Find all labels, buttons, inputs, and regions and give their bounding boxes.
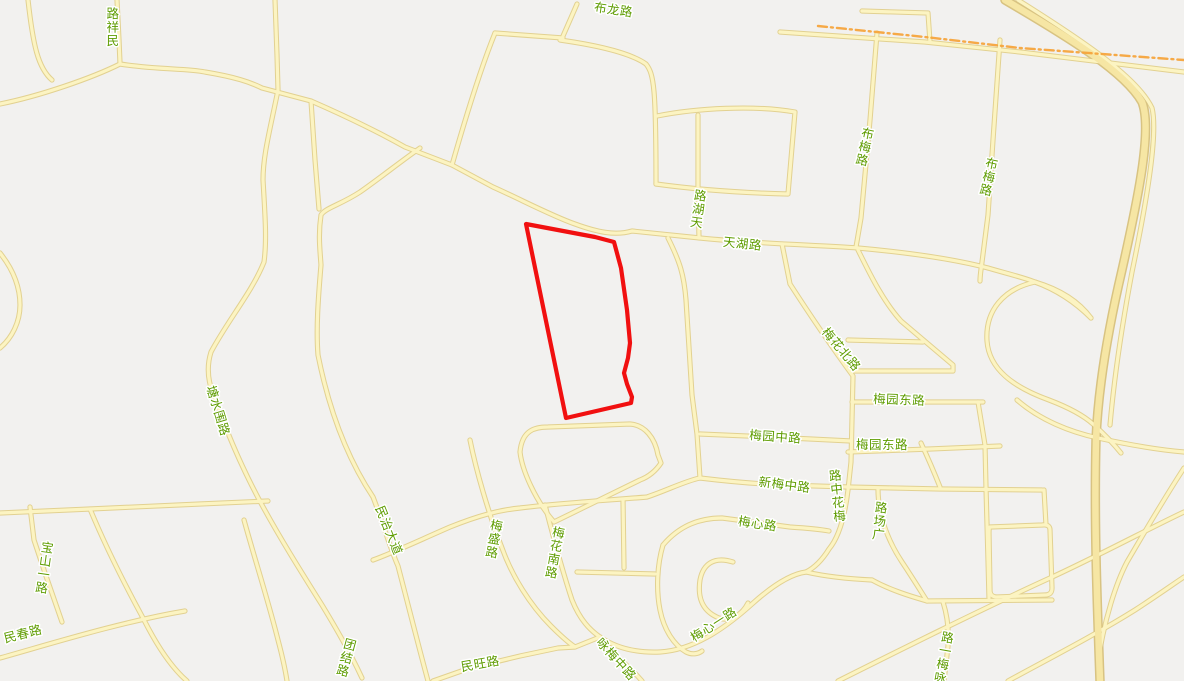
parcel-layer [526, 224, 632, 418]
road-label: 民春路 [2, 622, 43, 646]
road-path [656, 108, 795, 194]
road-fill-layer [0, 0, 1184, 681]
road-label: 路湖天 [689, 187, 708, 230]
road-path [1005, 0, 1146, 681]
road-label: 咏梅中路 [593, 635, 639, 681]
road-casing [988, 268, 1091, 318]
road-path [1044, 490, 1046, 525]
road-label: 布龙路 [593, 0, 634, 20]
road-label: 梅盛路 [484, 517, 504, 561]
road-label: 路祥民 [106, 6, 119, 48]
road-path [0, 501, 268, 513]
road-label: 民治大道 [372, 503, 405, 557]
road-label: 梅园东路 [873, 391, 926, 408]
map-viewport[interactable]: 布龙路路祥民路湖天天湖路布梅路布梅路梅花北路梅园东路梅园东路梅园中路新梅中路路中… [0, 0, 1184, 681]
road-path [623, 500, 624, 568]
map-canvas[interactable]: 布龙路路祥民路湖天天湖路布梅路布梅路梅花北路梅园东路梅园东路梅园中路新梅中路路中… [0, 0, 1184, 681]
road-label: 梅花北路 [819, 324, 864, 373]
road-path [563, 4, 577, 36]
road-label: 梅园中路 [749, 427, 802, 446]
road-path [208, 0, 362, 678]
road-path [988, 268, 1091, 318]
road-casing [668, 238, 700, 478]
road-label: 布梅路 [978, 155, 999, 199]
road-label: 梅心一路 [688, 604, 740, 645]
road-path [989, 525, 1052, 597]
road-path [560, 40, 656, 184]
road-label: 新梅中路 [758, 474, 811, 495]
road-casing [208, 0, 362, 678]
road-label: 路一梅咏 [933, 629, 955, 681]
road-label: 梅心路 [737, 513, 778, 533]
road-label: 布梅路 [854, 125, 875, 169]
road-label: 天湖路 [722, 234, 762, 253]
road-path [848, 340, 923, 342]
road-path [577, 572, 655, 574]
road-label: 梅园东路 [856, 437, 908, 452]
road-casing [0, 64, 988, 268]
road-casing [656, 108, 795, 194]
road-path [90, 509, 187, 681]
road-casing [90, 509, 187, 681]
parcel-outline[interactable] [526, 224, 632, 418]
road-casing [433, 637, 600, 681]
road-label: 塘水围路 [204, 384, 234, 438]
road-path [317, 148, 428, 681]
road-path [0, 64, 988, 268]
road-path [927, 600, 1052, 601]
road-casing [28, 0, 52, 80]
road-path [520, 424, 661, 522]
road-casing-layer [0, 0, 1184, 681]
road-path [600, 572, 806, 652]
road-casing [989, 525, 1052, 597]
road-label: 路中花梅 [828, 467, 847, 524]
road-label: 民旺路 [460, 653, 501, 675]
road-path [853, 250, 953, 371]
road-casing [1005, 0, 1146, 681]
